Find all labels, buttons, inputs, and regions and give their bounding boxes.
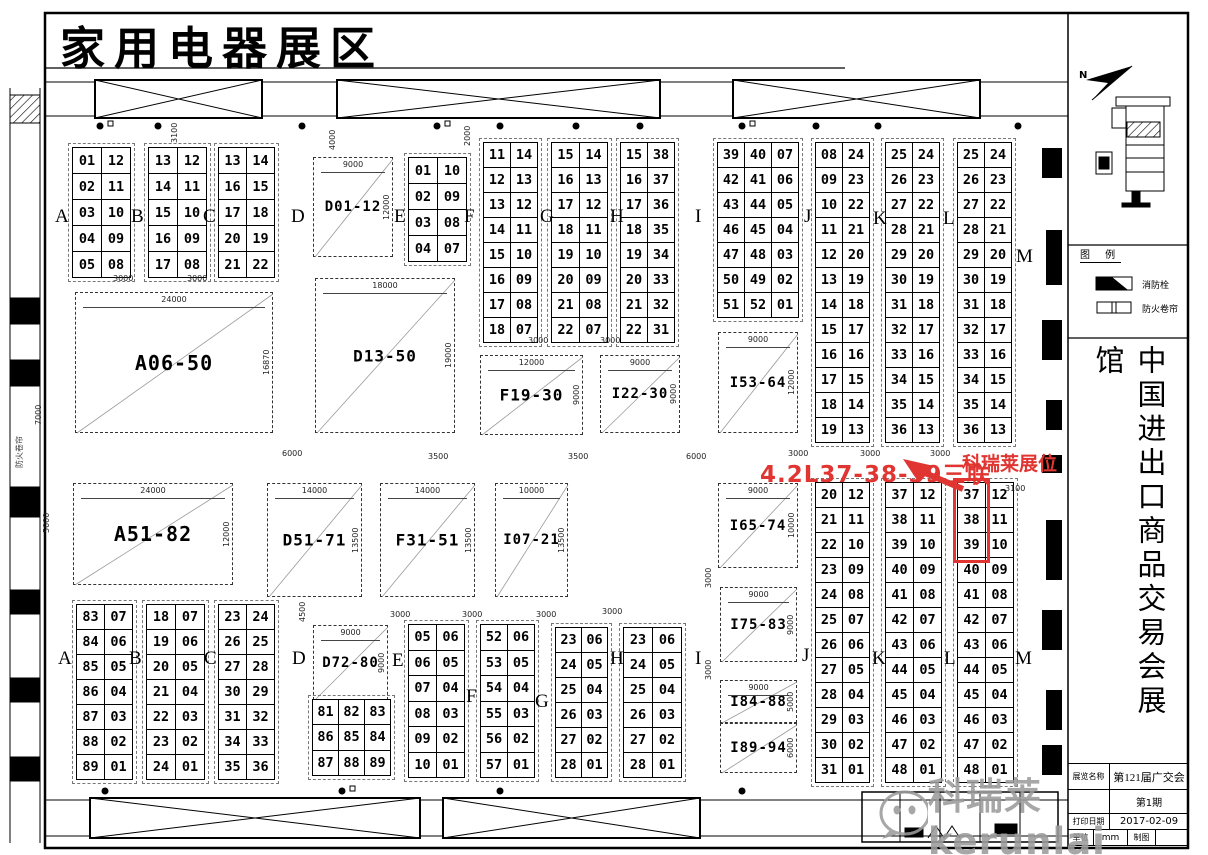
hall-name-vertical: 中国进出口商品交易会展馆 (1104, 345, 1152, 749)
booth-top-JK-18: 18 (816, 393, 842, 417)
booth-low-D72-86: 86 (313, 725, 338, 749)
booth-low-JK-25: 25 (816, 608, 842, 632)
dim-line (323, 293, 447, 294)
booth-low-KL-42: 42 (886, 608, 913, 632)
block-F31-51: F31-511400013500 (380, 483, 475, 597)
booth-top-FG-18: 18 (484, 318, 510, 342)
booth-top-I-42: 42 (718, 168, 744, 192)
booth-top-HI-21: 21 (621, 293, 647, 317)
booth-grid-top-FG: 11141213131214111510160917081807 (479, 138, 542, 347)
booth-top-LM-16: 16 (985, 343, 1011, 367)
booth-top-GH-17: 17 (552, 193, 579, 217)
booth-low-B-21: 21 (147, 680, 175, 704)
booth-top-GH-10: 10 (580, 243, 607, 267)
booth-top-FG-16: 16 (484, 268, 510, 292)
booth-top-I-40: 40 (745, 143, 771, 167)
watermark: 科瑞莱kerunlai (878, 766, 1208, 855)
block-A51-82: A51-822400012000 (73, 483, 233, 585)
block-dim-right: 9000 (572, 356, 581, 434)
booth-top-GH-21: 21 (552, 293, 579, 317)
booth-top-JK-19: 19 (816, 418, 842, 442)
booth-top-GH-14: 14 (580, 143, 607, 167)
booth-top-LM-28: 28 (958, 218, 984, 242)
booth-low-B-04: 04 (176, 680, 204, 704)
booth-top-C-22: 22 (247, 252, 274, 277)
booth-top-C-20: 20 (219, 226, 246, 251)
block-dim-right: 13500 (557, 484, 566, 596)
block-I53-64: I53-64900012000 (718, 332, 798, 433)
booth-low-B-05: 05 (176, 655, 204, 679)
dimension-text: 4000 (328, 130, 337, 150)
dim-line (83, 307, 265, 308)
booth-low-C-35: 35 (219, 755, 246, 779)
booth-low-A-87: 87 (77, 705, 104, 729)
booth-top-FG-11: 11 (511, 218, 537, 242)
booth-top-I-47: 47 (718, 243, 744, 267)
booth-top-GH-20: 20 (552, 268, 579, 292)
section-label-F: F (464, 206, 475, 228)
booth-top-KL-20: 20 (913, 243, 939, 267)
booth-low-JK-24: 24 (816, 583, 842, 607)
section-label-E: E (394, 206, 406, 228)
booth-low-GH-27: 27 (556, 728, 581, 752)
booth-low-C-25: 25 (247, 630, 274, 654)
booth-top-LM-13: 13 (985, 418, 1011, 442)
booth-top-KL-29: 29 (886, 243, 912, 267)
watermark-logo-icon (878, 789, 928, 841)
booth-low-D72-89: 89 (365, 751, 390, 775)
booth-top-KL-15: 15 (913, 368, 939, 392)
booth-top-GH-11: 11 (580, 218, 607, 242)
booth-low-C-29: 29 (247, 680, 274, 704)
booth-top-JK-15: 15 (843, 368, 869, 392)
booth-top-FG-17: 17 (484, 293, 510, 317)
booth-low-C-36: 36 (247, 755, 274, 779)
section-label-H: H (610, 206, 624, 228)
booth-top-I-05: 05 (772, 193, 798, 217)
booth-low-FG-55: 55 (481, 702, 507, 727)
booth-low-A-83: 83 (77, 605, 104, 629)
booth-top-HI-31: 31 (648, 318, 674, 342)
booth-low-GH-25: 25 (556, 678, 581, 702)
block-dim-top: 9000 (601, 358, 679, 367)
block-dim-right: 12000 (787, 333, 796, 432)
block-A06-50: A06-502400016870 (75, 292, 273, 433)
booth-top-I-50: 50 (718, 268, 744, 292)
booth-top-KL-18: 18 (913, 293, 939, 317)
booth-low-FG-01: 01 (508, 753, 534, 778)
booth-top-HI-22: 22 (621, 318, 647, 342)
block-I65-74: I65-74900010000 (718, 483, 798, 568)
booth-top-KL-27: 27 (886, 193, 912, 217)
dim-line (388, 498, 467, 499)
block-dim-top: 18000 (316, 281, 454, 290)
booth-top-I-41: 41 (745, 168, 771, 192)
booth-top-LM-34: 34 (958, 368, 984, 392)
booth-low-B-19: 19 (147, 630, 175, 654)
booth-low-JK-21: 21 (816, 508, 842, 532)
booth-grid-low-C: 2324262527283029313234333536 (214, 600, 279, 784)
booth-top-JK-21: 21 (843, 218, 869, 242)
booth-low-EF-01: 01 (437, 753, 464, 778)
section-label-K: K (872, 648, 886, 670)
booth-low-B-01: 01 (176, 755, 204, 779)
booth-low-KL-09: 09 (914, 558, 941, 582)
booth-grid-top-KL: 2524262327222821292030193118321733163415… (881, 138, 944, 447)
dim-line (81, 498, 225, 499)
block-dim-right: 9000 (786, 588, 795, 661)
booth-low-A-85: 85 (77, 655, 104, 679)
booth-top-I-06: 06 (772, 168, 798, 192)
booth-top-HI-34: 34 (648, 243, 674, 267)
booth-top-KL-35: 35 (886, 393, 912, 417)
block-label: I65-74 (719, 518, 797, 534)
booth-low-FG-54: 54 (481, 676, 507, 701)
block-label: I22-30 (601, 386, 679, 402)
booth-low-B-20: 20 (147, 655, 175, 679)
dimension-text: 6000 (686, 452, 706, 461)
booth-top-LM-22: 22 (985, 193, 1011, 217)
booth-low-LM-03: 03 (986, 708, 1013, 732)
dimension-text: 3000 (187, 274, 207, 283)
booth-low-JK-02: 02 (843, 733, 869, 757)
booth-grid-top-LM: 2524262327222821292030193118321733163415… (953, 138, 1016, 447)
booth-low-HI-25: 25 (624, 678, 652, 702)
booth-top-C-13: 13 (219, 148, 246, 173)
dimension-text: 4500 (298, 602, 307, 622)
block-D01-12: D01-12900012000 (313, 157, 393, 257)
dimension-text: 3100 (1005, 484, 1025, 493)
booth-top-HI-15: 15 (621, 143, 647, 167)
block-label: I53-64 (719, 375, 797, 391)
booth-top-KL-25: 25 (886, 143, 912, 167)
booth-top-FG-08: 08 (511, 293, 537, 317)
section-label-D: D (291, 206, 305, 228)
booth-low-C-32: 32 (247, 705, 274, 729)
booth-low-GH-01: 01 (582, 753, 607, 777)
booth-low-KL-03: 03 (914, 708, 941, 732)
block-D72-80: D72-8090009000 (313, 625, 388, 700)
dimension-text: 3100 (170, 123, 179, 143)
booth-low-EF-05: 05 (437, 651, 464, 676)
booth-top-JK-08: 08 (816, 143, 842, 167)
booth-low-JK-30: 30 (816, 733, 842, 757)
booth-low-B-23: 23 (147, 730, 175, 754)
block-label: D13-50 (316, 346, 454, 365)
dimension-text: 3000 (390, 610, 410, 619)
booth-top-LM-23: 23 (985, 168, 1011, 192)
section-label-F: F (466, 686, 477, 708)
booth-top-C-14: 14 (247, 148, 274, 173)
hall-title: 家用电器展区 (60, 12, 384, 77)
booth-top-HI-17: 17 (621, 193, 647, 217)
booth-low-JK-08: 08 (843, 583, 869, 607)
booth-grid-low-JK: 2012211122102309240825072606270528042903… (811, 478, 874, 787)
booth-top-KL-30: 30 (886, 268, 912, 292)
booth-low-D72-88: 88 (339, 751, 364, 775)
booth-low-KL-11: 11 (914, 508, 941, 532)
booth-low-HI-05: 05 (653, 653, 681, 677)
booth-low-LM-39: 39 (958, 533, 985, 557)
section-label-M: M (1015, 648, 1032, 670)
booth-top-KL-16: 16 (913, 343, 939, 367)
booth-top-B-09: 09 (178, 226, 206, 251)
booth-grid-top-HI: 15381637173618351934203321322231 (616, 138, 679, 347)
booth-low-FG-53: 53 (481, 651, 507, 676)
booth-top-HI-18: 18 (621, 218, 647, 242)
booth-top-B-12: 12 (178, 148, 206, 173)
dim-line (728, 695, 789, 696)
booth-grid-low-B: 1807190620052104220323022401 (142, 600, 209, 784)
dimension-text: 2000 (463, 126, 472, 146)
booth-top-A-01: 01 (73, 148, 101, 173)
section-label-G: G (540, 206, 554, 228)
booth-grid-top-EF: 0110020903080407 (404, 153, 471, 266)
booth-low-KL-05: 05 (914, 658, 941, 682)
booth-low-HI-02: 02 (653, 728, 681, 752)
booth-low-KL-43: 43 (886, 633, 913, 657)
booth-top-JK-11: 11 (816, 218, 842, 242)
booth-low-JK-06: 06 (843, 633, 869, 657)
booth-low-HI-01: 01 (653, 753, 681, 777)
booth-grid-top-GH: 15141613171218111910200921082207 (547, 138, 612, 347)
booth-top-LM-33: 33 (958, 343, 984, 367)
booth-low-EF-10: 10 (409, 753, 436, 778)
booth-grid-low-EF: 050606050704080309021001 (404, 620, 469, 782)
section-label-G: G (535, 691, 549, 713)
booth-low-HI-26: 26 (624, 703, 652, 727)
booth-low-LM-38: 38 (958, 508, 985, 532)
booth-top-C-17: 17 (219, 200, 246, 225)
legend-title: 图 例 (1080, 246, 1121, 263)
booth-top-A-12: 12 (102, 148, 130, 173)
booth-top-I-07: 07 (772, 143, 798, 167)
booth-low-KL-10: 10 (914, 533, 941, 557)
booth-low-A-02: 02 (105, 730, 132, 754)
legend-hydrant-symbol (1096, 277, 1132, 290)
booth-low-HI-23: 23 (624, 628, 652, 652)
booth-top-EF-09: 09 (438, 184, 466, 209)
booth-low-D72-82: 82 (339, 700, 364, 724)
booth-low-JK-27: 27 (816, 658, 842, 682)
section-label-L: L (943, 208, 955, 230)
booth-top-I-48: 48 (745, 243, 771, 267)
section-label-B: B (129, 648, 142, 670)
booth-top-KL-32: 32 (886, 318, 912, 342)
booth-low-JK-04: 04 (843, 683, 869, 707)
booth-low-B-24: 24 (147, 755, 175, 779)
watermark-text: 科瑞莱kerunlai (928, 766, 1208, 855)
booth-low-A-88: 88 (77, 730, 104, 754)
booth-low-EF-06: 06 (437, 625, 464, 650)
booth-top-B-14: 14 (149, 174, 177, 199)
booth-low-LM-42: 42 (958, 608, 985, 632)
booth-low-GH-26: 26 (556, 703, 581, 727)
block-label: D01-12 (314, 199, 392, 215)
booth-low-JK-07: 07 (843, 608, 869, 632)
block-dim-right: 6000 (786, 724, 795, 772)
booth-low-A-03: 03 (105, 705, 132, 729)
booth-top-B-11: 11 (178, 174, 206, 199)
booth-low-GH-02: 02 (582, 728, 607, 752)
booth-low-LM-43: 43 (958, 633, 985, 657)
booth-grid-low-FG: 520653055404550356025701 (476, 620, 539, 782)
booth-top-JK-17: 17 (816, 368, 842, 392)
booth-low-FG-05: 05 (508, 651, 534, 676)
dimension-text: 7000 (34, 405, 43, 425)
booth-low-GH-04: 04 (582, 678, 607, 702)
booth-top-JK-20: 20 (843, 243, 869, 267)
section-label-L: L (944, 648, 956, 670)
booth-low-EF-02: 02 (437, 727, 464, 752)
booth-top-JK-13: 13 (843, 418, 869, 442)
booth-top-B-13: 13 (149, 148, 177, 173)
booth-top-LM-14: 14 (985, 393, 1011, 417)
booth-grid-low-LM: 3712381139104009410842074306440545044603… (953, 478, 1018, 787)
block-dim-top: 9000 (719, 335, 797, 344)
booth-top-LM-17: 17 (985, 318, 1011, 342)
north-arrow-icon (1086, 66, 1132, 100)
booth-top-LM-21: 21 (985, 218, 1011, 242)
booth-top-I-39: 39 (718, 143, 744, 167)
booth-top-JK-22: 22 (843, 193, 869, 217)
booth-top-HI-36: 36 (648, 193, 674, 217)
dim-line (726, 498, 790, 499)
booth-top-JK-14: 14 (816, 293, 842, 317)
red-annotation-link-label: 4.2L37-38-39三联 (760, 455, 991, 489)
booth-low-KL-02: 02 (914, 733, 941, 757)
booth-low-D72-81: 81 (313, 700, 338, 724)
booth-top-EF-01: 01 (409, 158, 437, 183)
booth-top-JK-18: 18 (843, 293, 869, 317)
booth-top-JK-13: 13 (816, 268, 842, 292)
dim-line (321, 172, 385, 173)
block-dim-right: 19000 (444, 279, 453, 432)
booth-top-HI-19: 19 (621, 243, 647, 267)
block-dim-right: 13500 (351, 484, 360, 596)
booth-top-I-44: 44 (745, 193, 771, 217)
booth-low-LM-45: 45 (958, 683, 985, 707)
booth-top-HI-32: 32 (648, 293, 674, 317)
booth-top-FG-12: 12 (484, 168, 510, 192)
booth-top-LM-32: 32 (958, 318, 984, 342)
block-label: A06-50 (76, 351, 272, 375)
booth-low-KL-04: 04 (914, 683, 941, 707)
section-label-H: H (610, 648, 624, 670)
booth-low-C-27: 27 (219, 655, 246, 679)
booth-top-LM-31: 31 (958, 293, 984, 317)
block-dim-right: 12000 (382, 158, 391, 256)
booth-grid-top-A: 01120211031004090508 (68, 143, 135, 282)
dimension-text: 3000 (528, 336, 548, 345)
booth-low-EF-07: 07 (409, 676, 436, 701)
booth-low-HI-04: 04 (653, 678, 681, 702)
block-I84-88: I84-8890005000 (720, 680, 797, 723)
booth-low-JK-09: 09 (843, 558, 869, 582)
booth-low-A-06: 06 (105, 630, 132, 654)
booth-top-B-15: 15 (149, 200, 177, 225)
booth-top-LM-35: 35 (958, 393, 984, 417)
booth-top-I-45: 45 (745, 218, 771, 242)
booth-top-KL-34: 34 (886, 368, 912, 392)
booth-low-C-34: 34 (219, 730, 246, 754)
booth-top-GH-19: 19 (552, 243, 579, 267)
booth-low-C-28: 28 (247, 655, 274, 679)
booth-low-EF-03: 03 (437, 702, 464, 727)
block-dim-right: 9000 (377, 626, 386, 699)
booth-top-A-03: 03 (73, 200, 101, 225)
block-dim-top: 14000 (381, 486, 474, 495)
booth-low-KL-07: 07 (914, 608, 941, 632)
dim-line (321, 640, 380, 641)
section-label-J: J (804, 206, 811, 228)
booth-low-EF-06: 06 (409, 651, 436, 676)
booth-low-C-24: 24 (247, 605, 274, 629)
dim-line (275, 498, 354, 499)
booth-top-KL-28: 28 (886, 218, 912, 242)
booth-top-C-19: 19 (247, 226, 274, 251)
booth-low-KL-44: 44 (886, 658, 913, 682)
block-dim-right: 5000 (786, 681, 795, 722)
dimension-text: 3000 (600, 336, 620, 345)
booth-low-JK-28: 28 (816, 683, 842, 707)
block-I75-83: I75-8390009000 (720, 587, 797, 662)
booth-low-KL-06: 06 (914, 633, 941, 657)
section-label-B: B (131, 206, 144, 228)
booth-low-FG-56: 56 (481, 727, 507, 752)
booth-top-I-03: 03 (772, 243, 798, 267)
booth-low-D72-84: 84 (365, 725, 390, 749)
booth-low-JK-03: 03 (843, 708, 869, 732)
booth-top-I-43: 43 (718, 193, 744, 217)
block-dim-top: 12000 (481, 358, 582, 367)
booth-top-EF-04: 04 (409, 236, 437, 261)
block-D13-50: D13-501800019000 (315, 278, 455, 433)
booth-grid-low-GH: 230624052504260327022801 (551, 623, 612, 782)
booth-top-HI-38: 38 (648, 143, 674, 167)
booth-top-KL-23: 23 (913, 168, 939, 192)
booth-top-HI-37: 37 (648, 168, 674, 192)
booth-low-LM-10: 10 (986, 533, 1013, 557)
section-label-A: A (55, 206, 69, 228)
legend-item-hydrant: 消防栓 (1142, 278, 1169, 291)
booth-top-KL-31: 31 (886, 293, 912, 317)
booth-low-D72-87: 87 (313, 751, 338, 775)
booth-top-KL-19: 19 (913, 268, 939, 292)
booth-top-A-10: 10 (102, 200, 130, 225)
booth-top-KL-26: 26 (886, 168, 912, 192)
booth-top-EF-02: 02 (409, 184, 437, 209)
booth-top-FG-14: 14 (511, 143, 537, 167)
booth-top-LM-15: 15 (985, 368, 1011, 392)
block-label: F19-30 (481, 386, 582, 405)
booth-low-FG-06: 06 (508, 625, 534, 650)
booth-top-EF-03: 03 (409, 210, 437, 235)
block-dim-right: 12000 (222, 484, 231, 584)
dim-line (608, 370, 672, 371)
dimension-text: 3500 (568, 452, 588, 461)
booth-low-HI-03: 03 (653, 703, 681, 727)
booth-top-KL-21: 21 (913, 218, 939, 242)
booth-low-A-89: 89 (77, 755, 104, 779)
booth-grid-low-KL: 3712381139104009410842074306440545044603… (881, 478, 946, 787)
booth-low-A-05: 05 (105, 655, 132, 679)
booth-grid-top-B: 13121411151016091708 (144, 143, 211, 282)
block-D51-71: D51-711400013500 (267, 483, 362, 597)
booth-low-LM-02: 02 (986, 733, 1013, 757)
booth-low-JK-23: 23 (816, 558, 842, 582)
booth-low-HI-28: 28 (624, 753, 652, 777)
